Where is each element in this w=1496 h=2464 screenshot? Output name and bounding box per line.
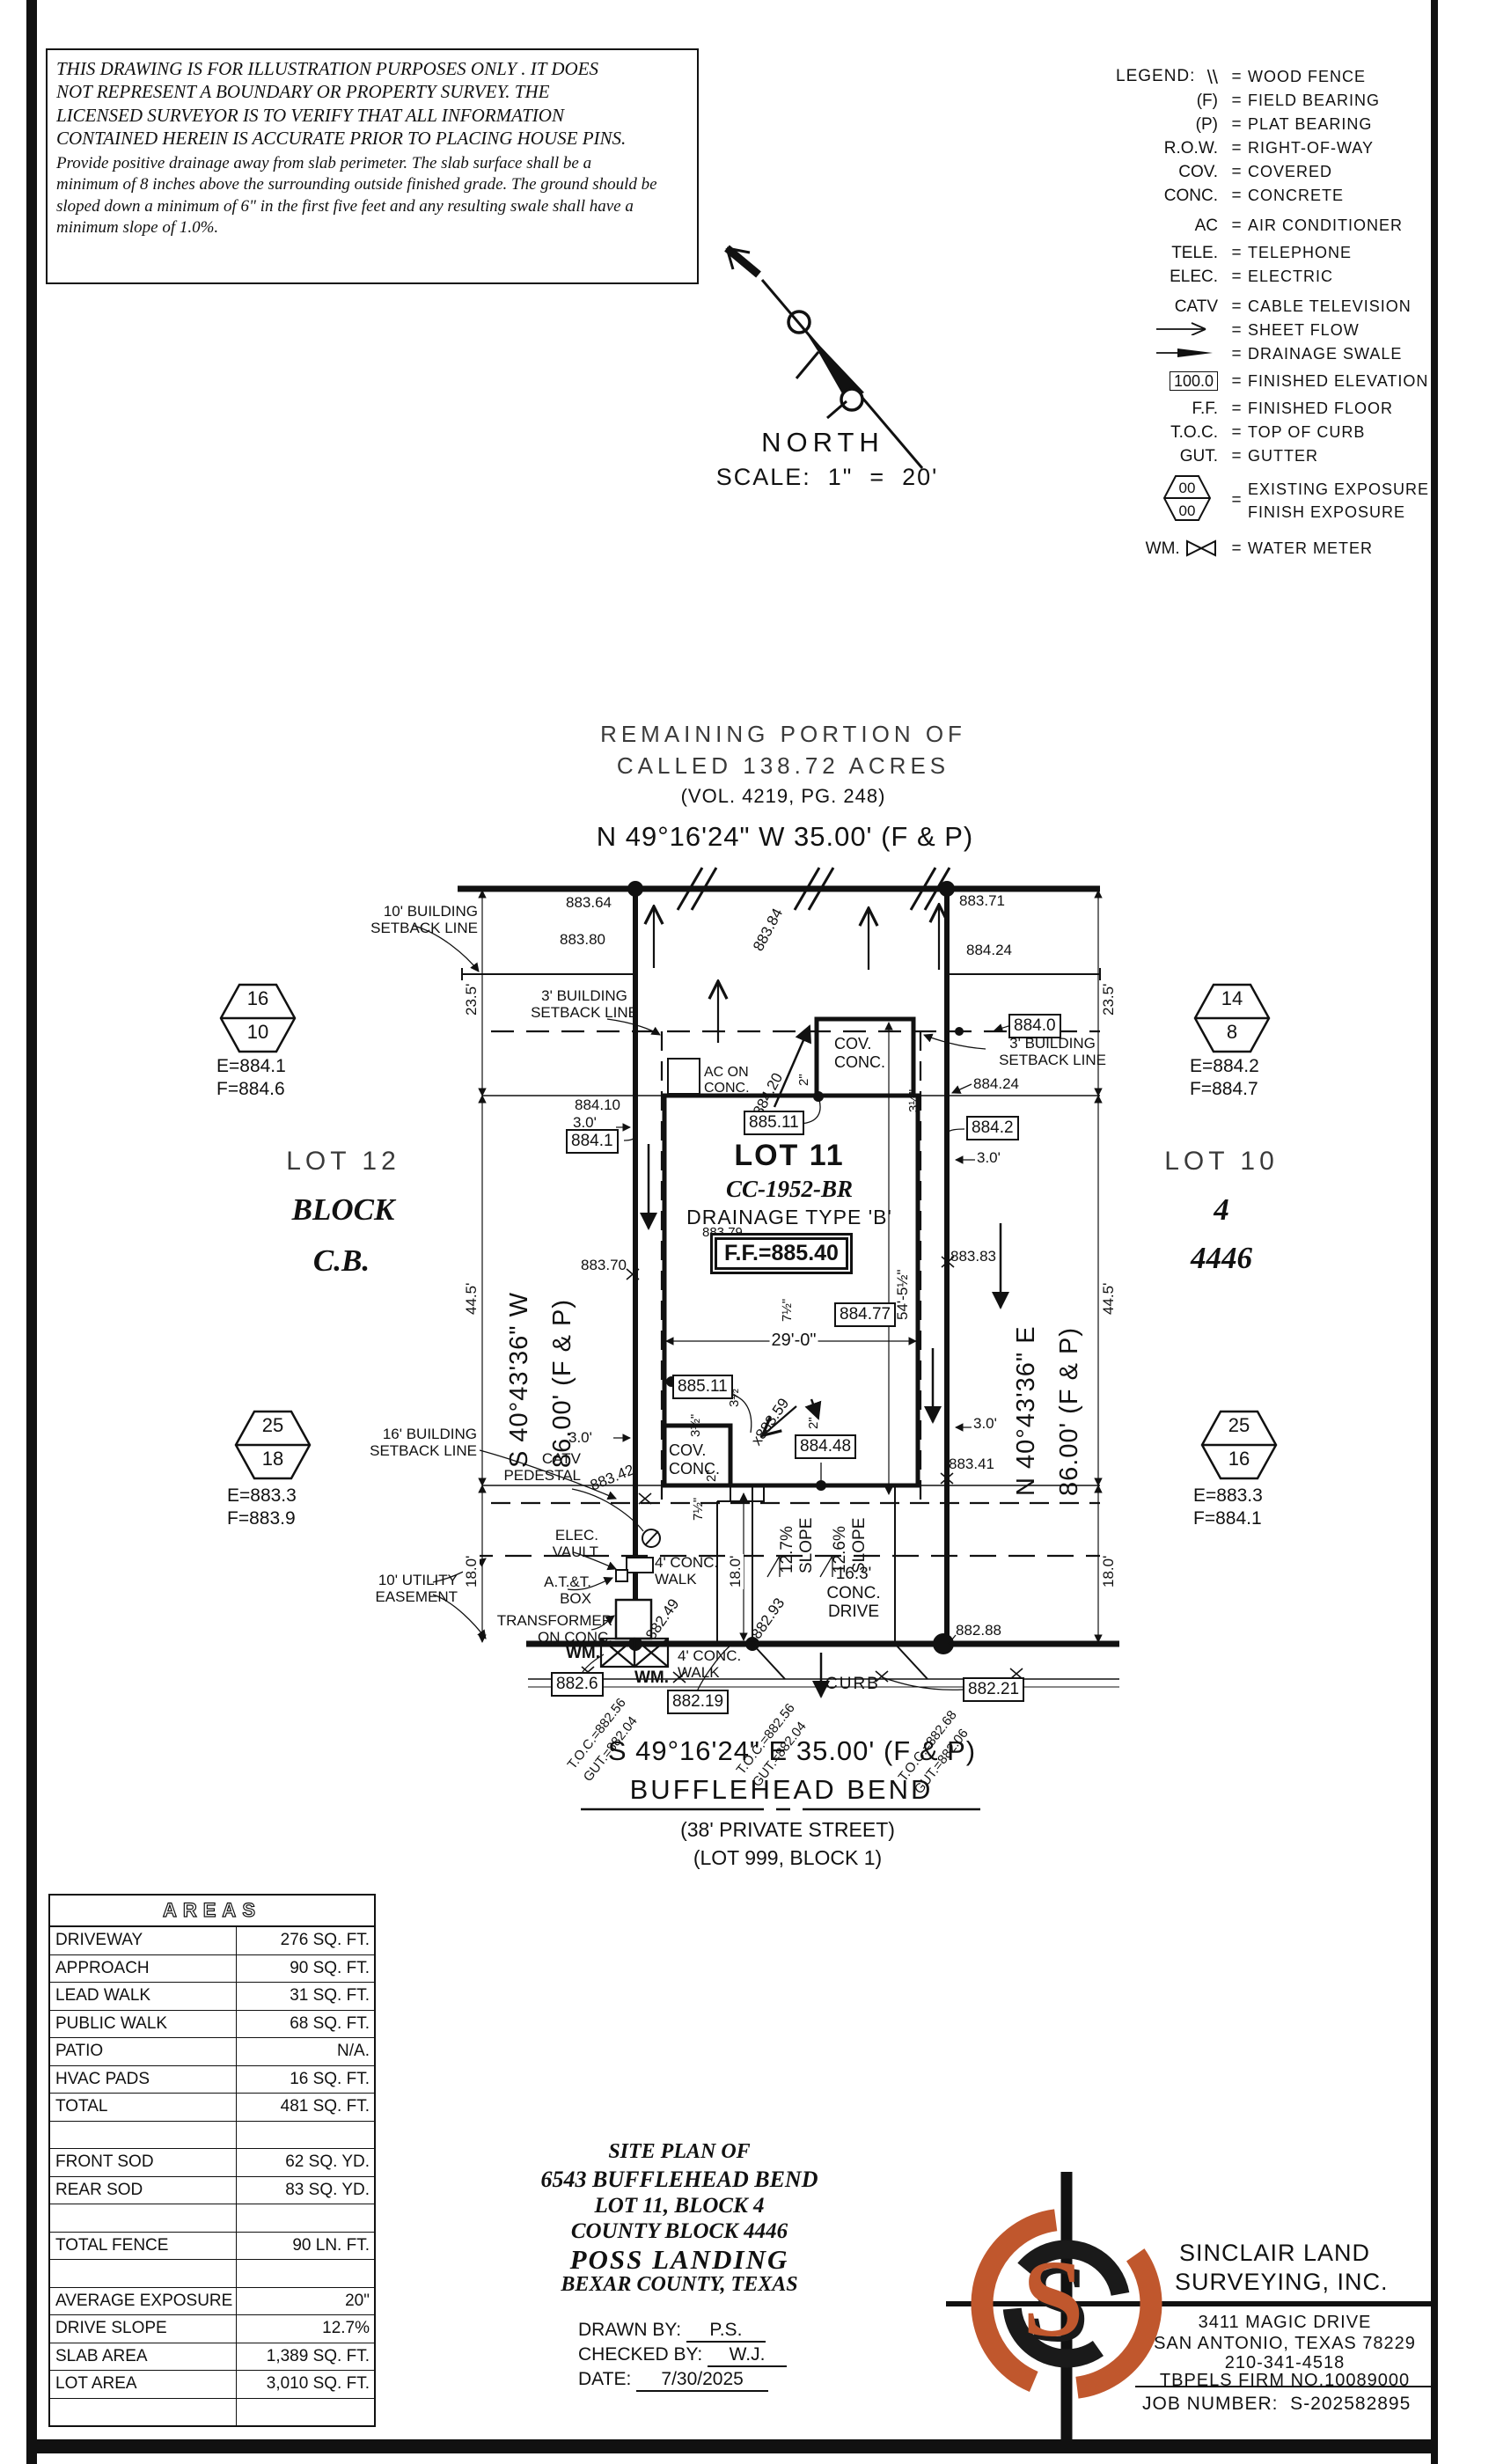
conc-walk-label-2: 4' CONC. WALK (678, 1647, 741, 1682)
catv-pedestal-label: CATV PEDESTAL (493, 1450, 581, 1485)
block4-label: 4 (1214, 1192, 1229, 1228)
checked-by-value: W.J. (708, 2344, 787, 2367)
hex-lt-e: E=884.1 (216, 1056, 286, 1077)
setback-10ft-label: 10' BUILDING SETBACK LINE (341, 903, 478, 937)
legend-row-wm: WM. =WATER METER (1111, 537, 1432, 561)
dim-44-5-right: 44.5' (1100, 1281, 1117, 1316)
block-word: BLOCK (292, 1192, 395, 1228)
elec-vault-label: ELEC. VAULT (528, 1527, 598, 1561)
svg-text:00: 00 (1179, 480, 1196, 496)
legend-row-cov: COV.=COVERED (1111, 160, 1432, 184)
logo-letter: S (1023, 2237, 1085, 2363)
table-row: REAR SOD83 SQ. YD. (50, 2177, 374, 2205)
wm-label-1: WM. (566, 1644, 600, 1663)
legend-row-conc: CONC.=CONCRETE (1111, 184, 1432, 208)
street-lot999-label: (LOT 999, BLOCK 1) (693, 1846, 882, 1869)
felev-884-48: 884.48 (795, 1434, 856, 1459)
volume-page-ref: (VOL. 4219, PG. 248) (681, 785, 886, 807)
hex-lt-existing: 16 (247, 987, 268, 1009)
walk-and-drive (528, 1485, 1119, 1687)
felev-882-21: 882.21 (963, 1677, 1024, 1702)
elev-882-88: 882.88 (956, 1622, 1001, 1639)
job-number: JOB NUMBER: S-202582895 (1142, 2394, 1411, 2415)
table-row: TOTAL481 SQ. FT. (50, 2094, 374, 2122)
areas-table-title: AREAS (50, 1896, 374, 1927)
hex-rb-existing: 25 (1228, 1414, 1250, 1436)
setback-3ft-left-label: 3' BUILDING SETBACK LINE (531, 987, 638, 1022)
wm-label-2: WM. (634, 1668, 669, 1688)
drainage-type: DRAINAGE TYPE 'B' (686, 1206, 892, 1228)
table-row: DRIVEWAY276 SQ. FT. (50, 1927, 374, 1955)
titleblock-line4: COUNTY BLOCK 4446 (571, 2219, 788, 2244)
site-plan-sheet: THIS DRAWING IS FOR ILLUSTRATION PURPOSE… (0, 0, 1496, 2464)
block-cb: C.B. (313, 1243, 370, 1279)
dim-3-5in-a: 3½" (906, 1089, 921, 1112)
cov-conc-front: COV. CONC. (669, 1441, 720, 1478)
dim-3-0-b: 3.0' (977, 1149, 1001, 1166)
hex-lt-finish: 10 (247, 1021, 268, 1043)
elev-884-24-b: 884.24 (973, 1075, 1019, 1092)
legend-row-drainage-swale: =DRAINAGE SWALE (1111, 342, 1432, 366)
titleblock-line3: LOT 11, BLOCK 4 (594, 2194, 764, 2218)
table-row: SLAB AREA1,389 SQ. FT. (50, 2343, 374, 2372)
hex-lt-f: F=884.6 (216, 1079, 285, 1100)
table-row: TOTAL FENCE90 LN. FT. (50, 2233, 374, 2261)
titleblock-line2: 6543 BUFFLEHEAD BEND (541, 2167, 818, 2193)
table-row: APPROACH90 SQ. FT. (50, 1955, 374, 1984)
hex-rb-finish: 16 (1228, 1448, 1250, 1470)
legend-row-row: R.O.W.=RIGHT-OF-WAY (1111, 136, 1432, 160)
setback-3ft-right-label: 3' BUILDING SETBACK LINE (999, 1035, 1106, 1069)
utility-easement-label: 10' UTILITY EASEMENT (348, 1572, 458, 1606)
felev-882-6: 882.6 (551, 1672, 604, 1697)
elev-883-70: 883.70 (581, 1257, 627, 1273)
legend-row-sheet-flow: =SHEET FLOW (1111, 319, 1432, 342)
legend-row-finished-elevation: 100.0=FINISHED ELEVATION (1111, 370, 1432, 393)
legend-row-toc: T.O.C.=TOP OF CURB (1111, 421, 1432, 444)
table-row: DRIVE SLOPE12.7% (50, 2315, 374, 2343)
north-label: NORTH (761, 427, 884, 458)
table-row: PATION/A. (50, 2038, 374, 2066)
lot10-label: LOT 10 (1164, 1147, 1279, 1177)
hex-lb-e: E=883.3 (227, 1485, 297, 1507)
wood-fence-icon: \\ (1111, 66, 1225, 89)
legend-row-catv: CATV=CABLE TELEVISION (1111, 295, 1432, 319)
table-row: AVERAGE EXPOSURE20" (50, 2288, 374, 2316)
dim-7-5in-a: 7½" (780, 1299, 795, 1322)
transformer-label: TRANSFORMER ON CONC. (489, 1612, 612, 1646)
hex-rt-finish: 8 (1227, 1021, 1237, 1043)
legend-row-gut: GUT.=GUTTER (1111, 444, 1432, 468)
elev-884-10: 884.10 (575, 1096, 620, 1113)
dim-54-5: 54'-5½" (894, 1268, 911, 1322)
table-row: LEAD WALK31 SQ. FT. (50, 1983, 374, 2011)
firm-address-line1: 3411 MAGIC DRIVE (1199, 2313, 1372, 2333)
hex-rb-e: E=883.3 (1193, 1485, 1263, 1507)
legend-row-plat-bearing: (P)=PLAT BEARING (1111, 113, 1432, 136)
sheet-flow-icon (1111, 321, 1225, 341)
lot12-label: LOT 12 (286, 1147, 400, 1177)
curb-label: CURB (825, 1675, 880, 1694)
drive-slope-1: 12.7% SLOPE (778, 1518, 816, 1573)
hex-lb-existing: 25 (262, 1414, 283, 1436)
drawn-by-value: P.S. (686, 2320, 766, 2343)
bearing-east-line: N 40°43'36" E 86.00' (F & P) (1005, 1325, 1092, 1496)
date-value: 7/30/2025 (636, 2369, 768, 2392)
felev-884-77: 884.77 (834, 1302, 896, 1327)
date-row: DATE: 7/30/2025 (578, 2369, 768, 2392)
hex-rt-f: F=884.7 (1190, 1079, 1258, 1100)
elev-883-64: 883.64 (566, 894, 612, 911)
titleblock-county: BEXAR COUNTY, TEXAS (561, 2273, 797, 2297)
felev-884-0: 884.0 (1008, 1014, 1061, 1038)
elev-883-41: 883.41 (949, 1456, 994, 1472)
hex-lb-finish: 18 (262, 1448, 283, 1470)
cov-conc-rear: COV. CONC. (834, 1035, 885, 1071)
dim-29-0: 29'-0" (770, 1331, 818, 1351)
disclaimer-paragraph-1: THIS DRAWING IS FOR ILLUSTRATION PURPOSE… (56, 57, 688, 150)
att-box-label: A.T.&T. BOX (521, 1573, 591, 1608)
dim-18-left: 18.0' (463, 1554, 480, 1589)
ac-on-conc: AC ON CONC. (704, 1065, 750, 1096)
firm-name-line2: SURVEYING, INC. (1175, 2269, 1389, 2296)
titleblock-line1: SITE PLAN OF (608, 2140, 750, 2164)
table-row (50, 2122, 374, 2150)
elev-884-24-a: 884.24 (966, 942, 1012, 958)
table-row: HVAC PADS16 SQ. FT. (50, 2066, 374, 2094)
checked-by-row: CHECKED BY: W.J. (578, 2344, 787, 2367)
exposure-hexagons (221, 985, 1276, 1478)
scale-label: SCALE: 1" = 20' (716, 464, 939, 491)
felev-885-11-a: 885.11 (744, 1111, 804, 1135)
bearing-west-line: S 40°43'36" W 86.00' (F & P) (498, 1292, 585, 1468)
street-private-label: (38' PRIVATE STREET) (680, 1818, 895, 1841)
elev-883-83: 883.83 (950, 1248, 996, 1265)
disclaimer-paragraph-2: Provide positive drainage away from slab… (56, 153, 688, 238)
hex-rb-f: F=884.1 (1193, 1508, 1262, 1529)
wm-label: WM. (1146, 539, 1180, 558)
legend-row-tele: TELE.=TELEPHONE (1111, 241, 1432, 265)
table-row (50, 2399, 374, 2426)
titleblock-subdivision: POSS LANDING (570, 2244, 789, 2276)
elev-883-80: 883.80 (560, 931, 605, 948)
legend-row-field-bearing: (F)=FIELD BEARING (1111, 89, 1432, 113)
bearing-south-line: S 49°16'24" E 35.00' (F & P) (608, 1735, 976, 1766)
bearing-north-line: N 49°16'24" W 35.00' (F & P) (597, 821, 974, 852)
table-row: PUBLIC WALK68 SQ. FT. (50, 2011, 374, 2039)
lot11-label: LOT 11 (734, 1139, 844, 1173)
drive-slope-2: 12.6% SLOPE (831, 1518, 869, 1573)
table-row: FRONT SOD62 SQ. YD. (50, 2149, 374, 2177)
dim-3-0-c: 3.0' (973, 1415, 997, 1432)
table-row (50, 2204, 374, 2233)
cb4446-label: 4446 (1191, 1241, 1252, 1276)
drainage-swale-icon (1111, 345, 1225, 364)
elev-883-71: 883.71 (959, 892, 1005, 909)
disclaimer-box: THIS DRAWING IS FOR ILLUSTRATION PURPOSE… (46, 48, 699, 284)
dim-18-mid: 18.0' (727, 1554, 744, 1589)
water-meter-icon (1184, 539, 1218, 557)
finished-floor-elevation: F.F.=885.40 (715, 1237, 848, 1270)
finished-elevation-box: 100.0 (1170, 371, 1218, 391)
dim-23-5-right: 23.5' (1100, 982, 1117, 1017)
felev-884-2: 884.2 (966, 1116, 1019, 1140)
exposure-hexagon-icon: 0000 (1111, 473, 1225, 528)
areas-table: AREAS DRIVEWAY276 SQ. FT. APPROACH90 SQ.… (48, 1894, 376, 2427)
remaining-portion-line2: CALLED 138.72 ACRES (617, 753, 950, 780)
table-row (50, 2260, 374, 2288)
legend-row-wood-fence: \\=WOOD FENCE (1111, 65, 1432, 89)
dim-3-5in-c: 3½" (688, 1414, 703, 1437)
firm-address-line2: SAN ANTONIO, TEXAS 78229 (1154, 2334, 1416, 2354)
dim-18-right: 18.0' (1100, 1554, 1117, 1589)
hex-rt-e: E=884.2 (1190, 1056, 1259, 1077)
dim-7-5in-b: 7½" (691, 1498, 706, 1521)
plan-number: CC-1952-BR (726, 1176, 853, 1203)
legend-row-elec: ELEC.=ELECTRIC (1111, 265, 1432, 289)
conc-walk-label-1: 4' CONC. WALK (655, 1554, 718, 1588)
drawn-by-row: DRAWN BY: P.S. (578, 2320, 766, 2343)
remaining-portion-line1: REMAINING PORTION OF (600, 722, 966, 748)
dim-23-5-left: 23.5' (463, 982, 480, 1017)
dim-2in-b: 2" (806, 1417, 821, 1429)
firm-tbpels: TBPELS FIRM NO.10089000 (1160, 2371, 1410, 2391)
legend-row-exposure: 0000=EXISTING EXPOSURE FINISH EXPOSURE (1111, 475, 1432, 526)
svg-text:00: 00 (1179, 502, 1196, 519)
dim-2in-a: 2" (796, 1074, 811, 1086)
felev-882-19: 882.19 (667, 1690, 729, 1714)
table-row: LOT AREA3,010 SQ. FT. (50, 2371, 374, 2399)
dim-44-5-left: 44.5' (463, 1281, 480, 1316)
legend-row-ac: AC=AIR CONDITIONER (1111, 214, 1432, 238)
legend: \\=WOOD FENCE (F)=FIELD BEARING (P)=PLAT… (1111, 65, 1432, 561)
legend-row-ff: F.F.=FINISHED FLOOR (1111, 397, 1432, 421)
firm-name-line1: SINCLAIR LAND (1179, 2240, 1370, 2267)
setback-16ft-label: 16' BUILDING SETBACK LINE (345, 1426, 477, 1460)
hex-lb-f: F=883.9 (227, 1508, 296, 1529)
street-name: BUFFLEHEAD BEND (630, 1774, 934, 1805)
felev-884-1: 884.1 (566, 1129, 619, 1154)
felev-885-11-b: 885.11 (672, 1375, 733, 1399)
hex-rt-existing: 14 (1221, 987, 1243, 1009)
